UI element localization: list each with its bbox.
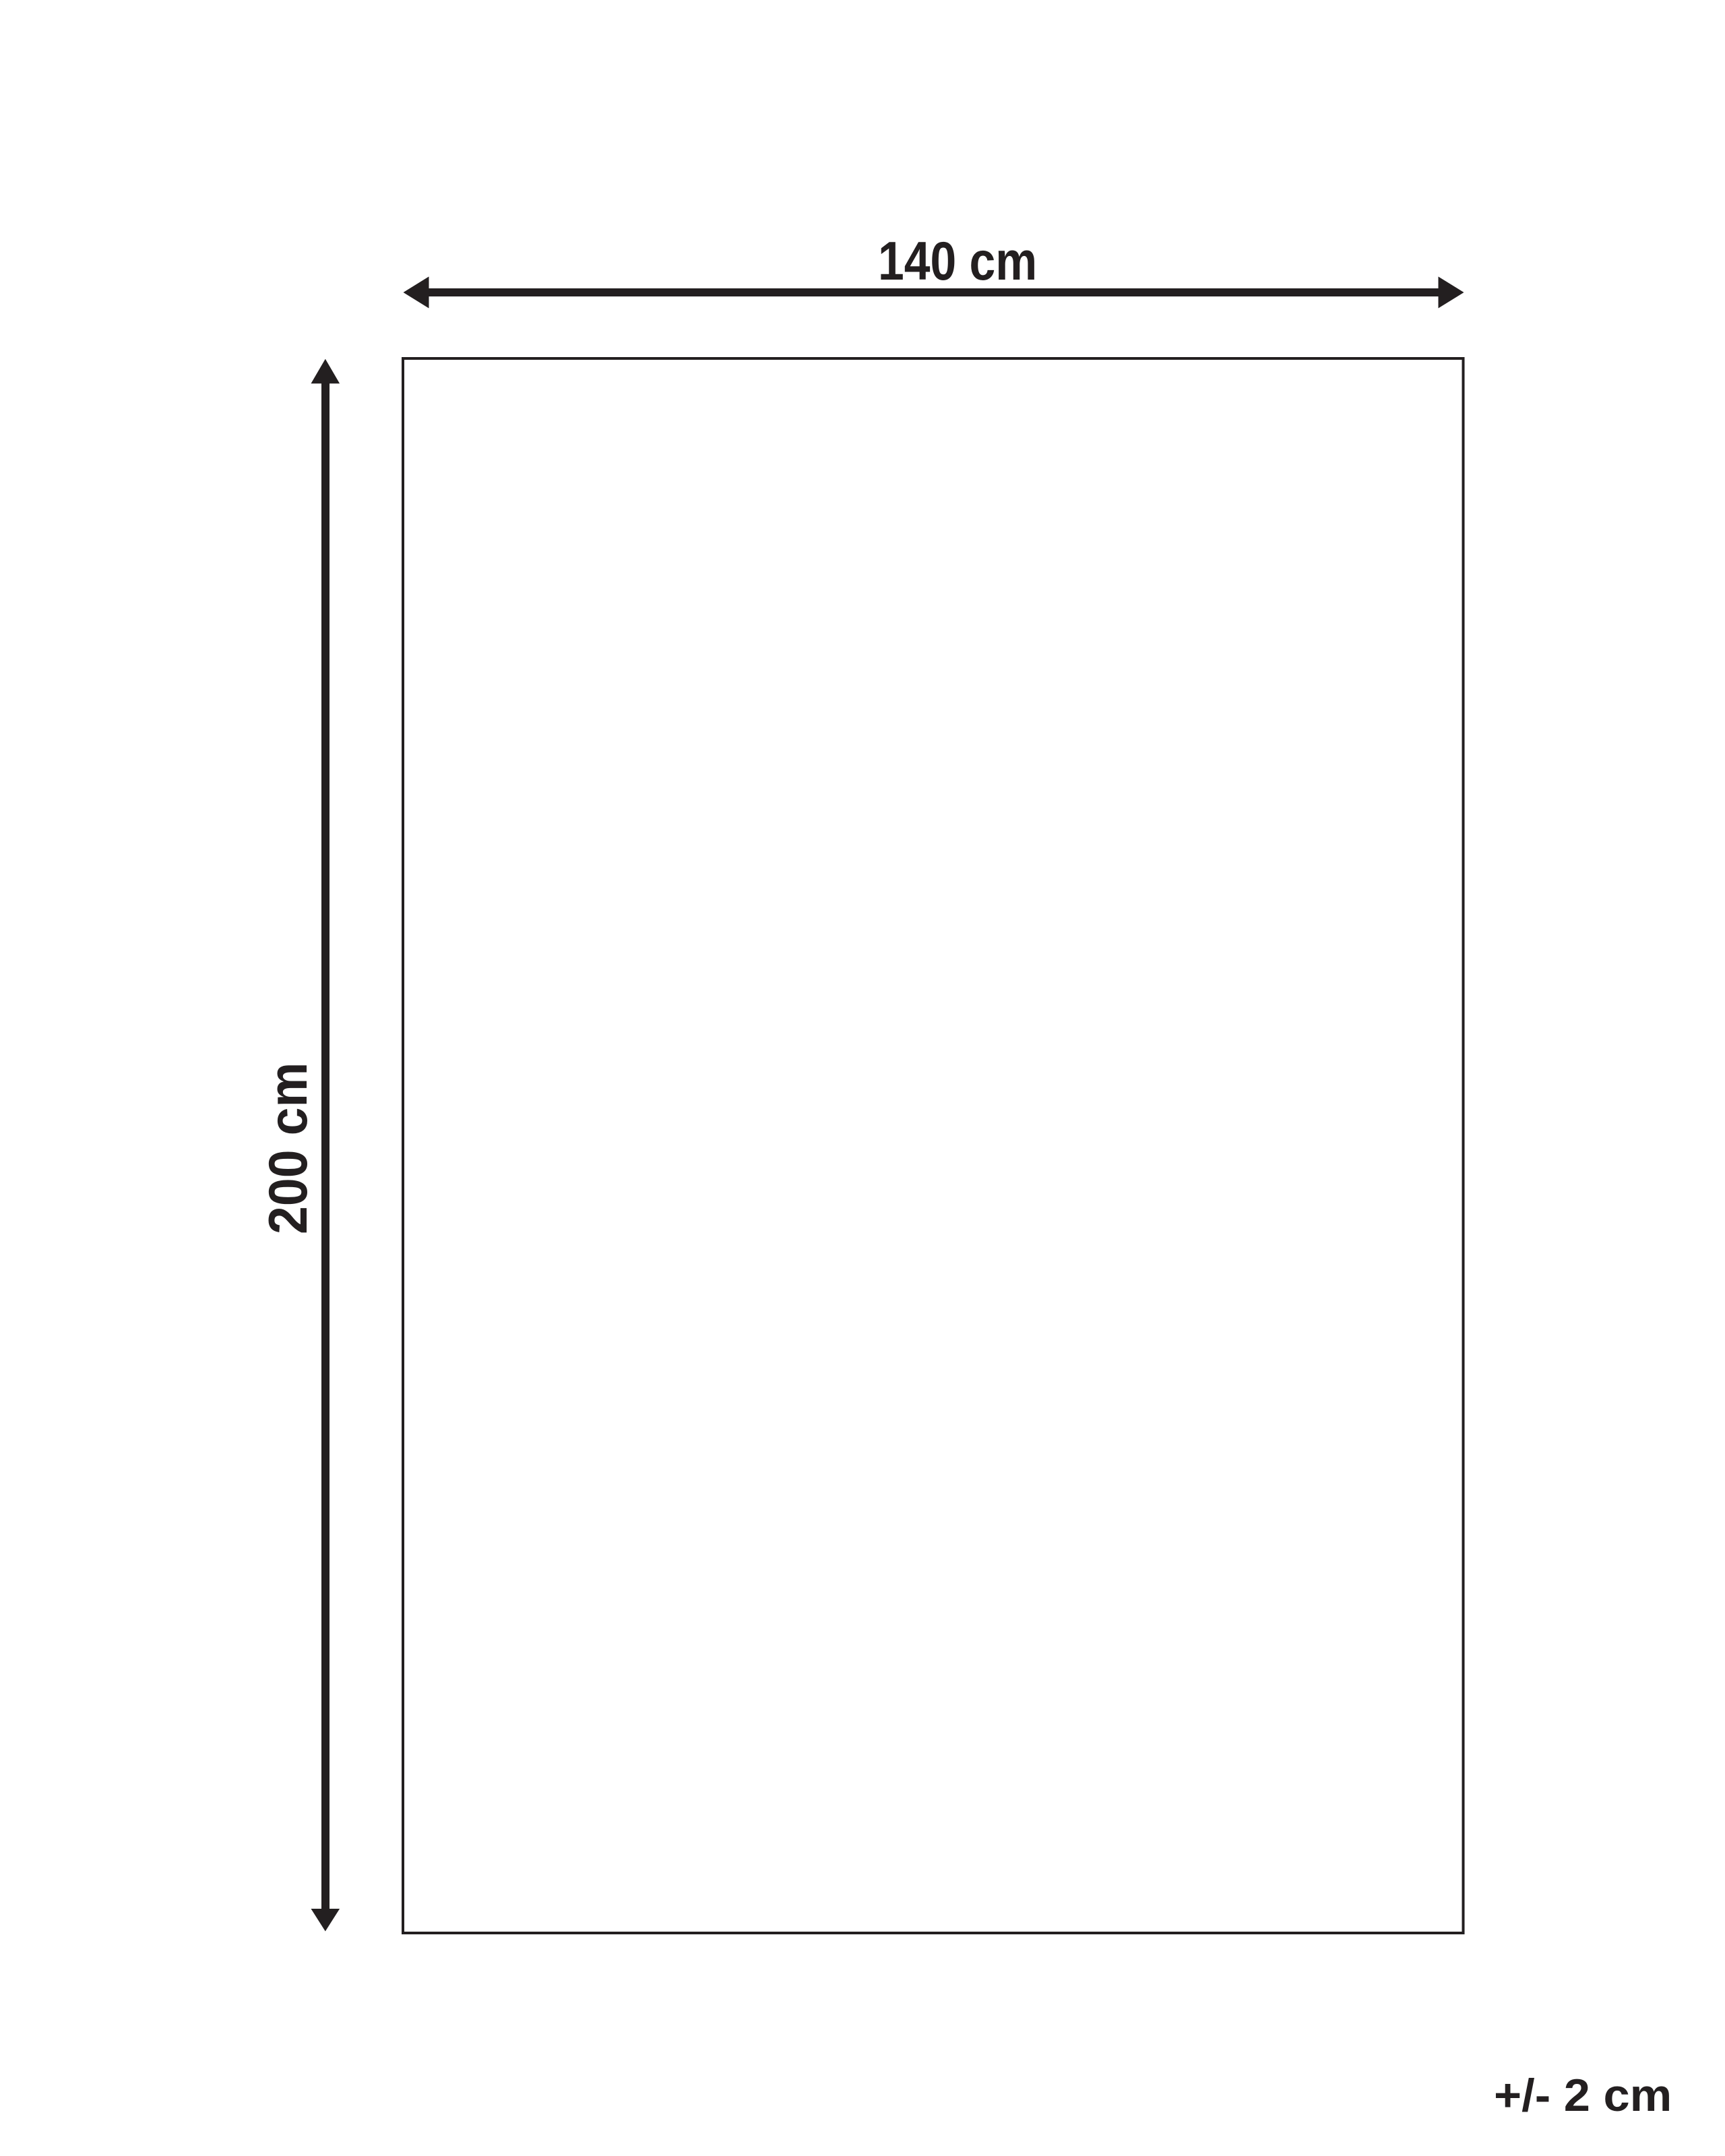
svg-text:200 cm: 200 cm xyxy=(257,1063,318,1234)
svg-text:140 cm: 140 cm xyxy=(878,231,1037,292)
svg-text:+/- 2 cm: +/- 2 cm xyxy=(1494,2069,1672,2121)
